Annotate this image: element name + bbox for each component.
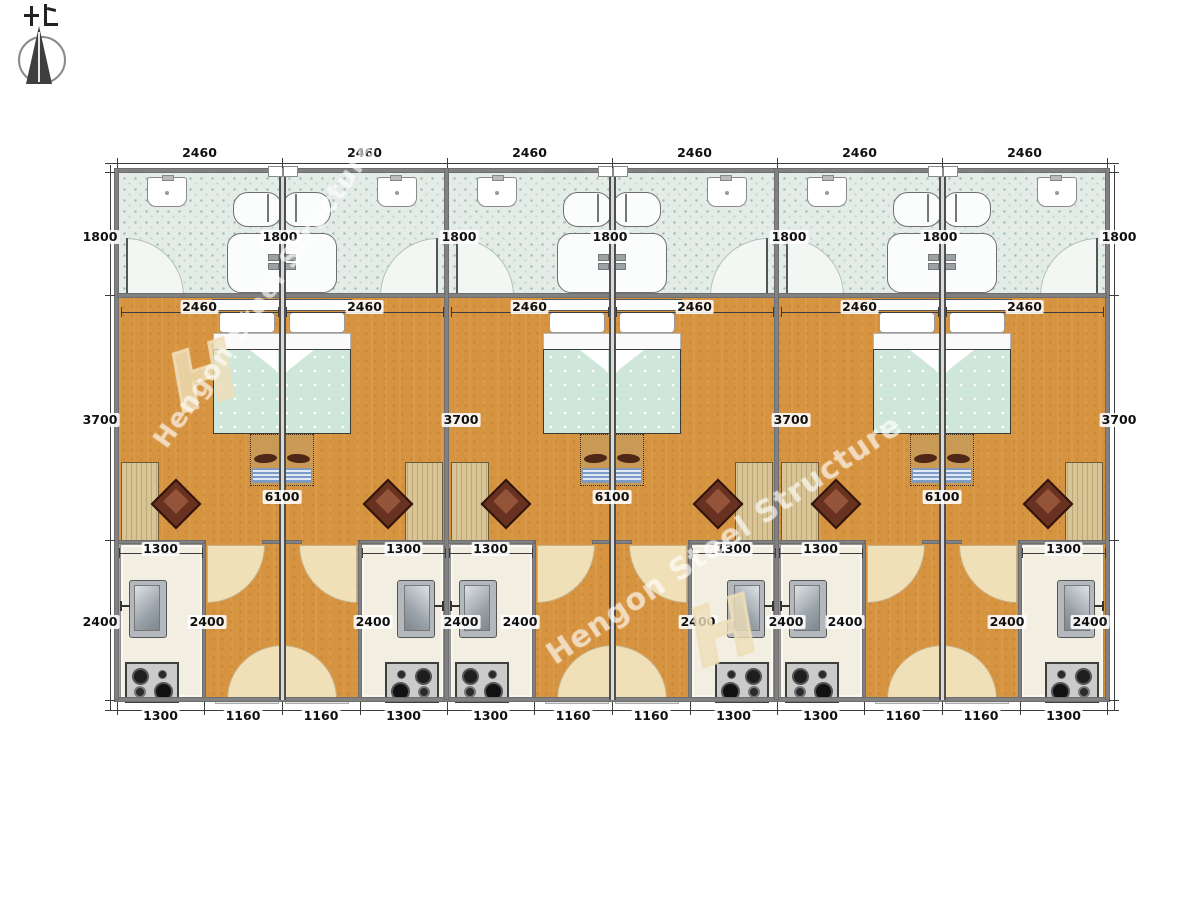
wash-basin [147,177,187,207]
bench-mattress [582,468,610,483]
basin-drain [495,191,499,195]
kitchen-sink [789,580,827,638]
bed-sheet [543,333,611,350]
kitchen-sink [129,580,167,638]
chair-seat [375,488,400,513]
basin-tap [162,175,174,181]
bed-duvet [613,349,681,434]
shower-control [945,254,956,261]
corridor-door-swing [959,545,1017,603]
bathroom-door-leaf [437,238,439,295]
bench-cushion [254,453,278,464]
bathtub-divider [626,194,628,222]
dimension-tick [362,548,363,558]
bed-pillow [619,312,675,333]
dim-top-unit-width: 2460 [180,146,219,160]
wash-basin [707,177,747,207]
dimension-tick [1109,540,1119,541]
dim-bottom-segment: 1160 [962,709,1001,723]
dimension-tick [1109,295,1119,296]
stove-burner [415,668,432,685]
stove-burner [462,668,479,685]
dimension-tick [278,307,279,317]
vent-divider [942,167,944,176]
kitchen-sink-basin [404,585,430,631]
dim-kitchen-depth: 2400 [501,615,540,629]
basin-tap [390,175,402,181]
dim-bottom-segment: 1300 [801,709,840,723]
dim-inner-unit-width: 2460 [180,300,219,314]
extension-line [117,702,118,710]
kitchen-faucet-handle [120,601,122,611]
dim-bedroom-depth: 3700 [81,413,120,427]
dimension-tick [938,307,939,317]
dim-bathroom-depth: 1800 [440,230,479,244]
shower-control [598,263,609,270]
bench-cushion [914,453,938,464]
dim-kitchen-width: 1300 [384,542,423,556]
duvet-fold [910,350,938,372]
dim-bottom-segment: 1300 [141,709,180,723]
kitchen-faucet [451,605,460,607]
stove-burner [488,670,497,679]
bed-pillow [949,312,1005,333]
entry-door-swing [941,645,997,699]
extension-line [777,702,778,710]
dim-living-length: 6100 [263,490,302,504]
bench-cushion [947,453,971,464]
wash-basin [377,177,417,207]
dim-kitchen-depth: 2400 [188,615,227,629]
kitchen-sink [397,580,435,638]
bed-bench [282,434,314,486]
corridor-door-swing [207,545,265,603]
chair-seat [1035,488,1060,513]
wash-basin [1037,177,1077,207]
dim-kitchen-depth: 2400 [1071,615,1110,629]
dim-bathroom-depth: 1800 [921,230,960,244]
dimension-tick [105,295,115,296]
dim-bottom-segment: 1160 [302,709,341,723]
dimension-tick [286,307,287,317]
bathroom-door-leaf [126,238,128,295]
floor-plan: 2460246024602460246024602460246024602460… [0,0,1200,900]
basin-drain [725,191,729,195]
chair-seat [823,488,848,513]
extension-line [612,702,613,710]
bathtub-divider [597,194,599,222]
kitchen-sink [1057,580,1095,638]
extension-line [1107,163,1108,168]
bathroom-door-swing [456,238,514,296]
corridor-door-swing [867,545,925,603]
duvet-fold [250,350,278,372]
chair-seat [163,488,188,513]
corridor-door-swing [299,545,357,603]
bed-bench [612,434,644,486]
extension-line [864,702,865,710]
stove-burner [132,668,149,685]
extension-line [360,702,361,710]
corridor-door-swing [537,545,595,603]
extension-line [1020,702,1021,710]
dim-kitchen-depth: 2400 [354,615,393,629]
dimension-tick [202,548,203,558]
dim-bathroom-depth: 1800 [1100,230,1139,244]
bathtub-divider [267,194,269,222]
bathroom-door-leaf [767,238,769,295]
dim-kitchen-depth: 2400 [81,615,120,629]
bathroom-door-swing [710,238,768,296]
dim-bathroom-depth: 1800 [81,230,120,244]
duvet-fold [580,350,608,372]
floor-plan-canvas: 2460246024602460246024602460246024602460… [0,0,1200,900]
extension-line [534,702,535,710]
basin-tap [492,175,504,181]
dimension-tick [443,307,444,317]
kitchen-faucet-handle [780,601,782,611]
entry-door-swing [887,645,943,699]
dimension-tick [862,548,863,558]
duvet-fold [286,350,314,372]
kitchen-sink-basin [134,585,160,631]
bathtub [233,192,282,227]
shower-control [928,263,939,270]
dim-kitchen-width: 1300 [1044,542,1083,556]
dim-bottom-segment: 1160 [224,709,263,723]
chair-seat [705,488,730,513]
shower-control [615,263,626,270]
dimension-tick [445,548,446,558]
bathtub-divider [296,194,298,222]
duvet-fold [946,350,974,372]
bathroom-door-swing [786,238,844,296]
dimension-line-right [1114,165,1115,710]
bed-bench [942,434,974,486]
dim-kitchen-width: 1300 [141,542,180,556]
dim-bedroom-depth: 3700 [442,413,481,427]
extension-line [1107,702,1108,710]
top-wall-vent [268,166,298,177]
dim-bottom-segment: 1300 [714,709,753,723]
dimension-tick [105,172,115,173]
bench-cushion [287,453,311,464]
entry-door-swing [281,645,337,699]
dim-top-unit-width: 2460 [675,146,714,160]
kitchen-faucet-handle [450,601,452,611]
bathroom-door-swing [380,238,438,296]
dim-inner-unit-width: 2460 [510,300,549,314]
dim-living-length: 6100 [923,490,962,504]
bed-headboard [542,299,612,311]
dim-kitchen-width: 1300 [471,542,510,556]
bathroom-door-swing [126,238,184,296]
kitchen-faucet [121,605,130,607]
bed-headboard [942,299,1012,311]
dimension-tick [119,548,120,558]
bed-pillow [879,312,935,333]
entry-door-swing [227,645,283,699]
bathtub-divider [956,194,958,222]
shower-control [598,254,609,261]
top-wall-vent [928,166,958,177]
bed-headboard [612,299,682,311]
basin-drain [825,191,829,195]
extension-line [690,702,691,710]
dim-kitchen-width: 1300 [801,542,840,556]
dim-bottom-segment: 1300 [471,709,510,723]
extension-line [447,702,448,710]
extension-line [117,163,118,168]
dim-inner-unit-width: 2460 [345,300,384,314]
stove-burner [397,670,406,679]
dim-top-unit-width: 2460 [510,146,549,160]
kitchen-sink [459,580,497,638]
dim-bottom-segment: 1300 [1044,709,1083,723]
bathtub [893,192,942,227]
dimension-tick [608,307,609,317]
bathtub-divider [927,194,929,222]
bench-cushion [617,453,641,464]
dim-bathroom-depth: 1800 [770,230,809,244]
wash-basin [807,177,847,207]
dimension-tick [532,548,533,558]
kitchen-faucet-handle [1102,601,1104,611]
dimension-tick [775,548,776,558]
vent-divider [282,167,284,176]
dim-bottom-segment: 1160 [632,709,671,723]
dim-kitchen-depth: 2400 [826,615,865,629]
dimension-tick [781,307,782,317]
extension-line [777,163,778,168]
dim-kitchen-depth: 2400 [988,615,1027,629]
bench-mattress [252,468,280,483]
bed-bench [250,434,282,486]
stove-burner [1057,670,1066,679]
bed-sheet [613,333,681,350]
dimension-tick [105,700,115,701]
bed-sheet [873,333,941,350]
extension-line [282,163,283,168]
basin-drain [1055,191,1059,195]
extension-line [942,163,943,168]
bed-sheet [943,333,1011,350]
bathroom-door-leaf [456,238,458,295]
bathtub [942,192,991,227]
bench-mattress [912,468,940,483]
dim-top-unit-width: 2460 [840,146,879,160]
stove-burner [1075,668,1092,685]
dimension-tick [1022,548,1023,558]
dimension-tick [1105,548,1106,558]
dim-kitchen-depth: 2400 [767,615,806,629]
dim-inner-unit-width: 2460 [840,300,879,314]
dim-living-length: 6100 [593,490,632,504]
kitchen-faucet [781,605,790,607]
dim-inner-unit-width: 2460 [1005,300,1044,314]
basin-drain [395,191,399,195]
dimension-tick [773,307,774,317]
shower-control [615,254,626,261]
basin-tap [822,175,834,181]
dimension-tick [1109,172,1119,173]
dimension-tick [451,307,452,317]
unit-separation-wall [939,168,946,700]
bed-duvet [283,349,351,434]
dim-bedroom-depth: 3700 [772,413,811,427]
dim-top-unit-width: 2460 [1005,146,1044,160]
bed-bench [580,434,612,486]
shower-control [945,263,956,270]
dimension-tick [1109,700,1119,701]
dim-bottom-segment: 1300 [384,709,423,723]
basin-drain [165,191,169,195]
stove-burner [158,670,167,679]
extension-line [612,163,613,168]
dim-bedroom-depth: 3700 [1100,413,1139,427]
dimension-tick [616,307,617,317]
dimension-tick [779,548,780,558]
extension-line [282,702,283,710]
vent-divider [612,167,614,176]
extension-line [942,702,943,710]
dimension-tick [1103,307,1104,317]
stove-burner [818,670,827,679]
bathroom-door-leaf [1097,238,1099,295]
bed-headboard [872,299,942,311]
dim-bottom-segment: 1160 [884,709,923,723]
dim-bathroom-depth: 1800 [591,230,630,244]
dimension-tick [121,307,122,317]
extension-line [204,702,205,710]
dimension-tick [105,540,115,541]
entry-door-swing [611,645,667,699]
dim-bottom-segment: 1160 [554,709,593,723]
stove-burner [792,668,809,685]
bench-mattress [284,468,312,483]
dim-kitchen-depth: 2400 [442,615,481,629]
bed-sheet [283,333,351,350]
dimension-tick [449,548,450,558]
bathtub [563,192,612,227]
wash-basin [477,177,517,207]
basin-tap [1050,175,1062,181]
shower-control [928,254,939,261]
bench-mattress [614,468,642,483]
bed-duvet [943,349,1011,434]
chair-seat [493,488,518,513]
bench-mattress [944,468,972,483]
basin-tap [720,175,732,181]
dimension-tick [946,307,947,317]
bench-cushion [584,453,608,464]
extension-line [447,163,448,168]
duvet-fold [616,350,644,372]
bed-duvet [543,349,611,434]
bed-headboard [282,299,352,311]
bed-pillow [289,312,345,333]
dim-inner-unit-width: 2460 [675,300,714,314]
bathtub [612,192,661,227]
bathroom-door-swing [1040,238,1098,296]
top-wall-vent [598,166,628,177]
bed-bench [910,434,942,486]
bed-pillow [549,312,605,333]
bathroom-door-leaf [786,238,788,295]
